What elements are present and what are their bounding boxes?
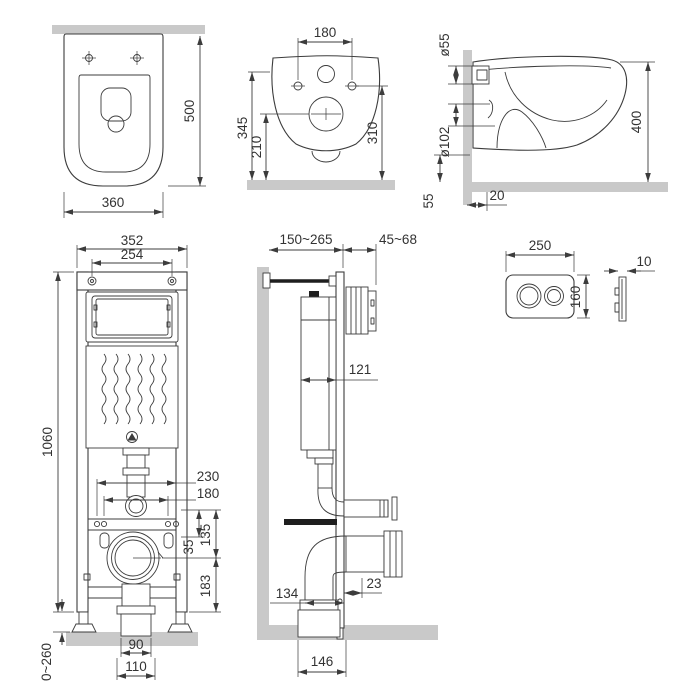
dimension-width: 360 (64, 192, 163, 218)
cistern-side (301, 291, 336, 464)
dim-label-outlet: ø102 (437, 127, 452, 158)
dim-label-183: 183 (198, 575, 213, 598)
toilet-side-view: ø55 ø102 55 20 400 (421, 33, 668, 211)
toilet-top-view: 500 360 (52, 25, 206, 218)
hanger-bolt-hole (88, 277, 96, 285)
frame-side-view: 150~265 45~68 121 23 134 146 (257, 232, 438, 677)
toilet-side-outline (473, 56, 627, 150)
outlet-pipe (122, 584, 150, 606)
outlet-pipe-lower (121, 614, 151, 636)
wall-section (463, 50, 472, 205)
dim-label-146: 146 (311, 654, 334, 669)
dim-label-180: 180 (197, 486, 220, 501)
frame-front-view: 352 254 1060 0~260 230 (39, 233, 221, 681)
inlet-connector (472, 66, 489, 84)
dimension-height-1060: 1060 (40, 272, 74, 612)
dimension-height-left: 345 (235, 72, 270, 180)
floor-section (247, 180, 395, 190)
dim-label-35: 35 (181, 539, 196, 554)
dim-label-bolt-spacing: 180 (314, 25, 337, 40)
dim-label-width: 360 (102, 195, 125, 210)
dim-label-150-265: 150~265 (280, 232, 333, 247)
dim-label-10: 10 (636, 254, 651, 269)
drawing-canvas: 500 360 180 (0, 0, 700, 700)
wall-section (52, 25, 205, 34)
dimension-23: 23 (344, 576, 382, 598)
flush-outlet-pipe (344, 497, 397, 520)
flush-pipe (127, 475, 145, 497)
dimension-bottom-55: 55 (421, 155, 470, 209)
floor-pipe (298, 610, 340, 637)
dim-label-1060: 1060 (40, 427, 55, 457)
dim-label-0-260: 0~260 (39, 643, 54, 681)
dimension-legs-0-260: 0~260 (39, 599, 70, 681)
dim-label-depth: 500 (182, 100, 197, 123)
dim-label-45-68: 45~68 (379, 232, 417, 247)
dim-label-110: 110 (125, 659, 147, 674)
toilet-rear-view: 180 345 210 310 (235, 25, 395, 190)
flush-bend-pipe (318, 464, 332, 488)
dim-label-90: 90 (128, 637, 143, 652)
flush-pipe-collar (123, 468, 149, 475)
dim-label-121: 121 (349, 362, 372, 377)
drain-socket (107, 532, 163, 584)
dim-label-352: 352 (121, 233, 144, 248)
dim-label-134: 134 (276, 586, 299, 601)
dimension-plate-thickness: 10 (604, 254, 655, 271)
toilet-rear-outline (272, 56, 380, 151)
plate-clip (615, 303, 619, 312)
plate-clip (615, 288, 619, 295)
frame-rail (336, 272, 344, 628)
support-bracket-bar (284, 519, 337, 525)
dimension-180: 180 (104, 486, 219, 516)
foot-plate (168, 624, 192, 632)
dim-label-310: 310 (365, 122, 380, 145)
access-window-panel (96, 299, 168, 335)
flush-pipe-collar (123, 448, 149, 455)
dim-label-400: 400 (629, 111, 644, 134)
dim-label-345: 345 (235, 117, 250, 140)
dim-label-250: 250 (529, 238, 552, 253)
dim-label-20: 20 (489, 188, 504, 203)
fixing-slot (100, 533, 109, 548)
dim-label-135: 135 (198, 524, 213, 547)
fill-valve-cap (309, 291, 319, 297)
dimension-183: 183 (189, 558, 221, 612)
dim-label-230: 230 (197, 469, 220, 484)
hanger-bolt-hole (168, 277, 176, 285)
dimension-depth: 500 (168, 36, 206, 186)
dim-label-23: 23 (366, 576, 381, 591)
drain-outlet-pipe (346, 531, 402, 577)
dim-label-inlet: ø55 (437, 33, 452, 56)
dim-label-254: 254 (121, 247, 144, 262)
foot-plate (72, 624, 96, 632)
dimension-depth-range: 150~265 (269, 232, 343, 268)
flush-plate-side-view: 10 (604, 254, 655, 321)
dimension-110: 110 (117, 658, 155, 680)
outlet-pipe-collar (117, 606, 155, 614)
technical-drawing-page: 500 360 180 (0, 0, 700, 700)
wall-section (257, 267, 269, 625)
wall-bracket-rod (263, 273, 336, 288)
dimension-146: 146 (298, 640, 346, 677)
flush-plate-module (346, 287, 376, 334)
flush-pipe (127, 455, 145, 468)
floor-section (257, 625, 438, 640)
dimension-plate-range: 45~68 (343, 232, 417, 285)
dim-label-55: 55 (421, 193, 436, 208)
dim-label-160: 160 (568, 286, 583, 309)
elbow-collar (300, 600, 338, 610)
dim-label-210: 210 (249, 136, 264, 159)
flush-plate-front-view: 250 160 (506, 238, 590, 318)
outlet-bump (312, 151, 340, 162)
dimension-plate-width: 250 (506, 238, 574, 272)
fixing-slot (164, 533, 173, 548)
plate-profile (619, 277, 626, 321)
cistern-body (86, 346, 178, 448)
